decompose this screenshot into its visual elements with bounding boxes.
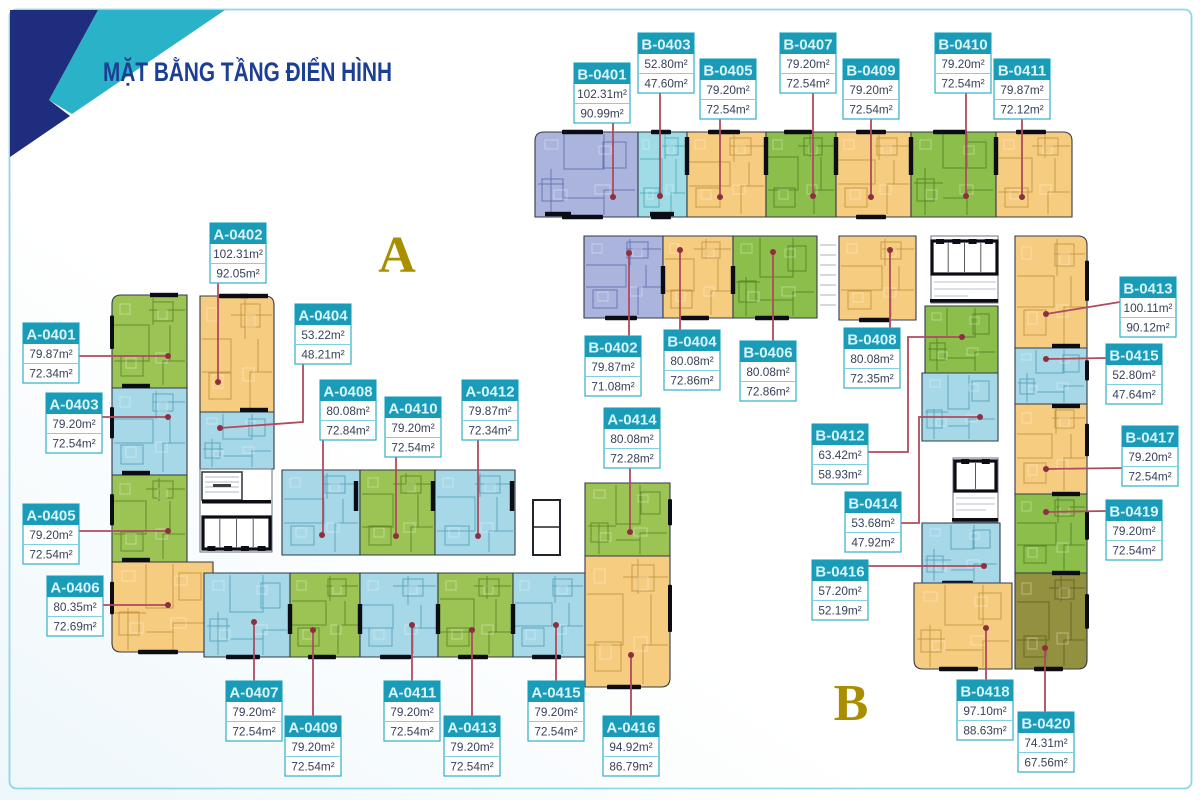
svg-text:88.63m²: 88.63m² (963, 724, 1006, 738)
svg-text:72.54m²: 72.54m² (941, 77, 984, 91)
svg-text:A-0401: A-0401 (26, 327, 75, 344)
svg-text:67.56m²: 67.56m² (1024, 756, 1067, 770)
svg-text:B: B (834, 675, 869, 732)
svg-text:A-0413: A-0413 (447, 720, 496, 737)
svg-text:72.28m²: 72.28m² (610, 452, 653, 466)
svg-text:B-0407: B-0407 (783, 37, 832, 54)
svg-text:57.20m²: 57.20m² (818, 584, 861, 598)
svg-text:A-0403: A-0403 (49, 397, 98, 414)
svg-text:92.05m²: 92.05m² (216, 267, 259, 281)
svg-text:B-0417: B-0417 (1125, 430, 1174, 447)
svg-text:79.20m²: 79.20m² (786, 57, 829, 71)
svg-text:B-0412: B-0412 (815, 428, 864, 445)
svg-text:72.86m²: 72.86m² (670, 374, 713, 388)
svg-text:90.12m²: 90.12m² (1126, 321, 1169, 335)
svg-text:A-0405: A-0405 (26, 508, 75, 525)
svg-text:79.20m²: 79.20m² (232, 705, 275, 719)
svg-text:72.54m²: 72.54m² (52, 437, 95, 451)
svg-text:72.54m²: 72.54m² (849, 103, 892, 117)
svg-text:94.92m²: 94.92m² (609, 740, 652, 754)
svg-text:72.54m²: 72.54m² (534, 725, 577, 739)
svg-text:B-0403: B-0403 (641, 37, 690, 54)
svg-text:79.20m²: 79.20m² (291, 740, 334, 754)
svg-text:72.34m²: 72.34m² (468, 424, 511, 438)
svg-text:53.22m²: 53.22m² (301, 328, 344, 342)
svg-text:72.54m²: 72.54m² (29, 548, 72, 562)
svg-text:79.20m²: 79.20m² (1112, 524, 1155, 538)
svg-text:47.64m²: 47.64m² (1112, 388, 1155, 402)
svg-text:A-0414: A-0414 (607, 412, 657, 429)
svg-text:B-0406: B-0406 (743, 345, 792, 362)
svg-text:72.54m²: 72.54m² (706, 103, 749, 117)
svg-text:79.20m²: 79.20m² (534, 705, 577, 719)
svg-text:A-0408: A-0408 (323, 384, 372, 401)
svg-text:MẶT BẰNG TẦNG ĐIỂN HÌNH: MẶT BẰNG TẦNG ĐIỂN HÌNH (103, 56, 392, 87)
svg-text:97.10m²: 97.10m² (963, 704, 1006, 718)
svg-text:72.35m²: 72.35m² (850, 372, 893, 386)
svg-text:72.54m²: 72.54m² (232, 725, 275, 739)
svg-text:B-0409: B-0409 (846, 63, 895, 80)
svg-text:86.79m²: 86.79m² (609, 760, 652, 774)
svg-text:72.54m²: 72.54m² (786, 77, 829, 91)
svg-text:72.54m²: 72.54m² (1128, 470, 1171, 484)
svg-text:72.54m²: 72.54m² (390, 725, 433, 739)
svg-text:53.68m²: 53.68m² (851, 516, 894, 530)
svg-text:100.11m²: 100.11m² (1124, 301, 1173, 315)
svg-text:79.20m²: 79.20m² (52, 417, 95, 431)
svg-text:80.08m²: 80.08m² (610, 432, 653, 446)
svg-text:A-0406: A-0406 (50, 580, 99, 597)
svg-text:B-0413: B-0413 (1123, 281, 1172, 298)
svg-text:B-0416: B-0416 (815, 564, 864, 581)
svg-text:A-0415: A-0415 (531, 685, 580, 702)
svg-text:72.34m²: 72.34m² (29, 367, 72, 381)
svg-text:B-0414: B-0414 (848, 496, 898, 513)
svg-text:52.80m²: 52.80m² (1112, 368, 1155, 382)
svg-text:B-0419: B-0419 (1109, 504, 1158, 521)
svg-text:A: A (378, 227, 416, 284)
svg-text:B-0402: B-0402 (588, 340, 637, 357)
svg-text:63.42m²: 63.42m² (818, 448, 861, 462)
svg-text:A-0416: A-0416 (606, 720, 655, 737)
svg-text:A-0412: A-0412 (465, 384, 514, 401)
svg-text:79.20m²: 79.20m² (849, 83, 892, 97)
svg-text:A-0409: A-0409 (288, 720, 337, 737)
svg-text:80.08m²: 80.08m² (326, 404, 369, 418)
svg-text:79.20m²: 79.20m² (390, 705, 433, 719)
svg-text:B-0411: B-0411 (998, 63, 1046, 80)
svg-text:80.08m²: 80.08m² (850, 352, 893, 366)
svg-text:52.80m²: 52.80m² (644, 57, 687, 71)
svg-text:79.20m²: 79.20m² (29, 528, 72, 542)
svg-text:72.54m²: 72.54m² (391, 441, 434, 455)
svg-text:A-0404: A-0404 (298, 308, 348, 325)
svg-text:102.31m²: 102.31m² (577, 87, 627, 101)
svg-text:B-0415: B-0415 (1109, 348, 1158, 365)
svg-text:80.35m²: 80.35m² (53, 600, 96, 614)
svg-text:79.87m²: 79.87m² (591, 360, 634, 374)
svg-text:72.54m²: 72.54m² (291, 760, 334, 774)
svg-text:72.86m²: 72.86m² (746, 385, 789, 399)
svg-text:72.69m²: 72.69m² (53, 620, 96, 634)
svg-text:47.60m²: 47.60m² (644, 77, 687, 91)
svg-text:79.20m²: 79.20m² (706, 83, 749, 97)
svg-text:72.12m²: 72.12m² (1000, 103, 1043, 117)
svg-text:A-0411: A-0411 (388, 685, 436, 702)
svg-text:A-0410: A-0410 (388, 401, 437, 418)
svg-text:79.20m²: 79.20m² (450, 740, 493, 754)
svg-text:74.31m²: 74.31m² (1024, 736, 1067, 750)
svg-text:47.92m²: 47.92m² (851, 536, 894, 550)
svg-text:80.08m²: 80.08m² (746, 365, 789, 379)
svg-text:A-0402: A-0402 (213, 227, 262, 244)
svg-text:71.08m²: 71.08m² (591, 380, 634, 394)
svg-text:52.19m²: 52.19m² (818, 604, 861, 618)
svg-text:79.20m²: 79.20m² (941, 57, 984, 71)
svg-text:72.84m²: 72.84m² (326, 424, 369, 438)
svg-text:79.87m²: 79.87m² (29, 347, 72, 361)
svg-text:B-0404: B-0404 (667, 334, 717, 351)
svg-text:80.08m²: 80.08m² (670, 354, 713, 368)
svg-text:58.93m²: 58.93m² (818, 468, 861, 482)
svg-text:90.99m²: 90.99m² (580, 107, 623, 121)
svg-text:B-0408: B-0408 (847, 332, 896, 349)
svg-text:A-0407: A-0407 (229, 685, 278, 702)
svg-text:79.20m²: 79.20m² (391, 421, 434, 435)
svg-text:B-0418: B-0418 (960, 684, 1009, 701)
svg-text:B-0405: B-0405 (703, 63, 752, 80)
svg-text:102.31m²: 102.31m² (213, 247, 263, 261)
svg-text:B-0410: B-0410 (938, 37, 987, 54)
svg-text:72.54m²: 72.54m² (1112, 544, 1155, 558)
svg-text:79.87m²: 79.87m² (1000, 83, 1043, 97)
svg-text:B-0420: B-0420 (1021, 716, 1070, 733)
svg-text:72.54m²: 72.54m² (450, 760, 493, 774)
svg-text:79.87m²: 79.87m² (468, 404, 511, 418)
svg-text:B-0401: B-0401 (577, 67, 626, 84)
svg-text:48.21m²: 48.21m² (301, 348, 344, 362)
svg-text:79.20m²: 79.20m² (1128, 450, 1171, 464)
